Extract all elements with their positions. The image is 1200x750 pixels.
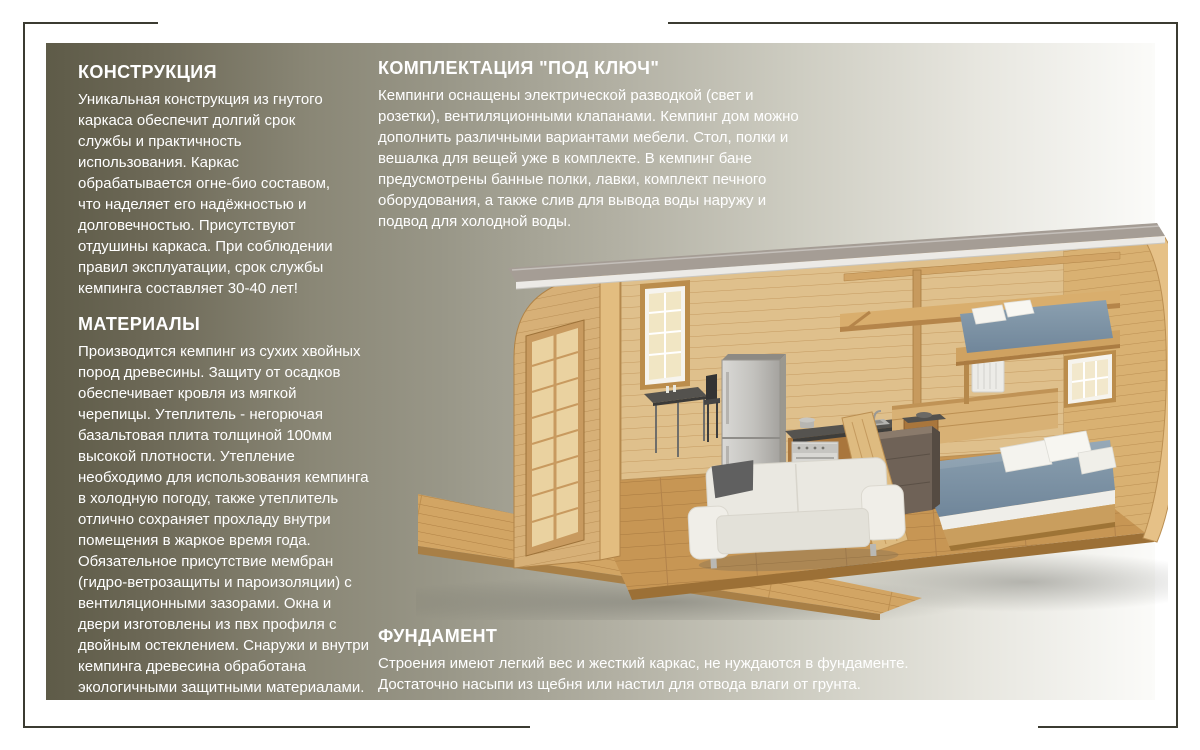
frame-left-line <box>23 22 25 728</box>
construction-title: КОНСТРУКЦИЯ <box>78 62 398 83</box>
frame-top-right-segment <box>668 22 1178 24</box>
section-foundation: ФУНДАМЕНТ Строения имеют легкий вес и же… <box>378 626 1018 695</box>
radiator <box>972 360 1004 392</box>
camping-house-image <box>416 210 1168 620</box>
glazed-door <box>526 320 584 556</box>
equipment-title: КОМПЛЕКТАЦИЯ "ПОД КЛЮЧ" <box>378 58 858 79</box>
pot <box>799 418 815 429</box>
left-arch-rib <box>600 264 620 560</box>
left-window <box>640 280 690 390</box>
section-equipment: КОМПЛЕКТАЦИЯ "ПОД КЛЮЧ" Кемпинги оснащен… <box>378 58 858 232</box>
section-materials: МАТЕРИАЛЫ Производится кемпинг из сухих … <box>78 314 408 698</box>
frame-right-line <box>1176 22 1178 728</box>
foundation-body: Строения имеют легкий вес и жесткий карк… <box>378 653 1018 695</box>
frame-bottom-right-segment <box>1038 726 1178 728</box>
materials-body: Производится кемпинг из сухих хвойных по… <box>78 341 408 698</box>
brochure-page: КОНСТРУКЦИЯ Уникальная конструкция из гн… <box>0 0 1200 750</box>
foundation-title: ФУНДАМЕНТ <box>378 626 1018 647</box>
left-wall <box>514 264 620 568</box>
frame-top-left-segment <box>23 22 158 24</box>
frame-bottom-left-segment <box>23 726 530 728</box>
section-construction: КОНСТРУКЦИЯ Уникальная конструкция из гн… <box>78 62 398 299</box>
sofa <box>685 452 907 575</box>
materials-title: МАТЕРИАЛЫ <box>78 314 408 335</box>
right-window <box>1064 350 1116 408</box>
construction-body: Уникальная конструкция из гнутого каркас… <box>78 89 398 299</box>
